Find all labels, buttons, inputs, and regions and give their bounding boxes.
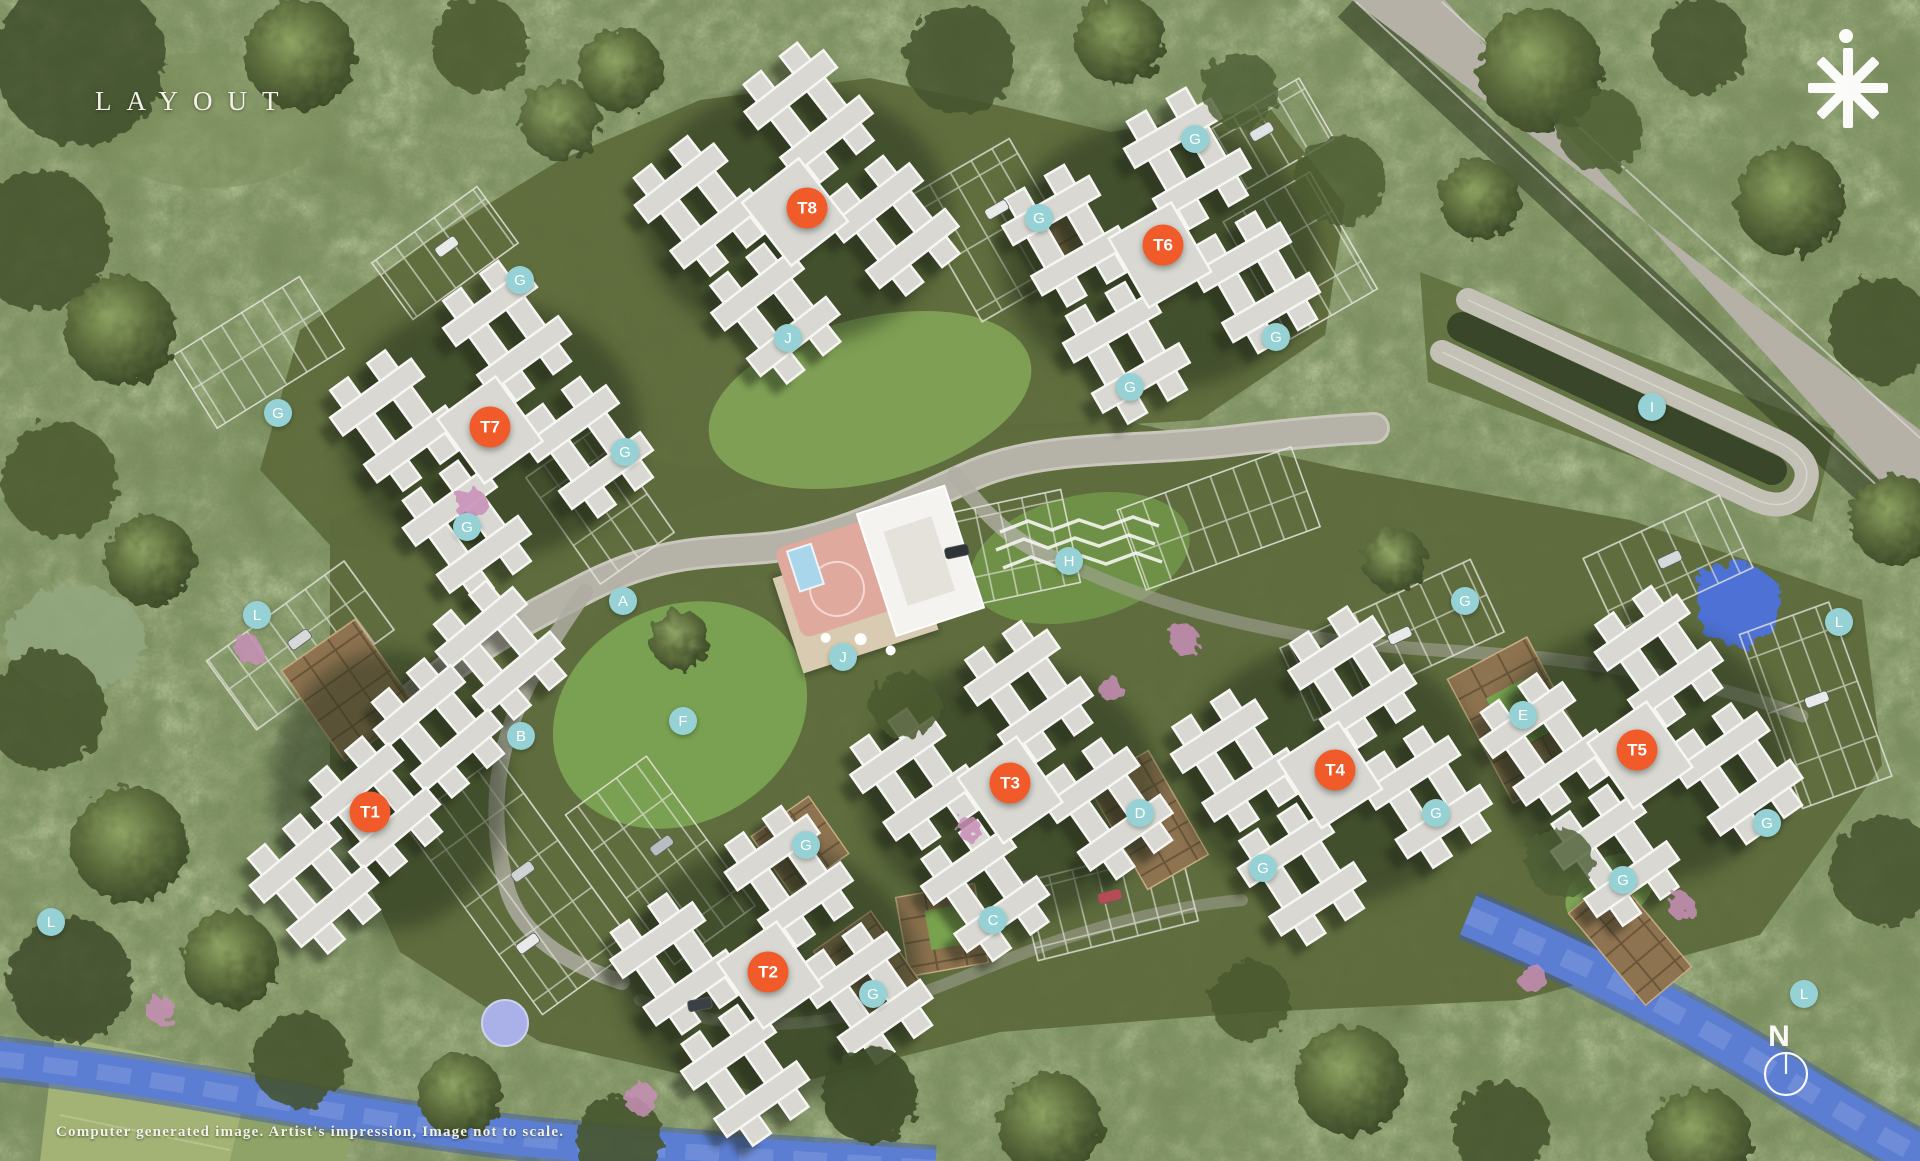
amenity-marker-l-25: L (243, 601, 271, 629)
tower-marker-t4: T4 (1315, 750, 1356, 791)
tower-marker-t3: T3 (990, 763, 1031, 804)
site-layout-map: N T1T2T3T4T5T6T7T8ABCDEFHIJJGGGGGGGGGGGG… (0, 0, 1920, 1161)
amenity-marker-b-1: B (507, 722, 535, 750)
tower-marker-t1: T1 (350, 792, 391, 833)
tower-marker-t7: T7 (470, 407, 511, 448)
tower-marker-t5: T5 (1617, 730, 1658, 771)
page-title: LAYOUT (95, 86, 294, 117)
amenity-marker-l-28: L (1790, 980, 1818, 1008)
tower-marker-t8: T8 (787, 188, 828, 229)
amenity-marker-g-24: G (1753, 809, 1781, 837)
amenity-marker-c-2: C (979, 906, 1007, 934)
amenity-marker-j-8: J (774, 324, 802, 352)
amenity-marker-g-18: G (792, 831, 820, 859)
amenity-marker-g-14: G (1116, 373, 1144, 401)
amenity-marker-g-19: G (859, 980, 887, 1008)
amenity-marker-a-0: A (609, 587, 637, 615)
marker-layer: T1T2T3T4T5T6T7T8ABCDEFHIJJGGGGGGGGGGGGGG… (0, 0, 1920, 1161)
amenity-marker-g-17: G (453, 513, 481, 541)
amenity-marker-e-4: E (1509, 701, 1537, 729)
amenity-marker-g-23: G (1609, 866, 1637, 894)
amenity-marker-d-3: D (1126, 799, 1154, 827)
amenity-marker-g-12: G (1181, 125, 1209, 153)
tower-marker-t2: T2 (748, 952, 789, 993)
amenity-marker-g-15: G (264, 399, 292, 427)
amenity-marker-g-21: G (1422, 799, 1450, 827)
amenity-marker-g-20: G (1249, 854, 1277, 882)
amenity-marker-j-9: J (829, 643, 857, 671)
amenity-marker-g-16: G (611, 438, 639, 466)
amenity-marker-h-6: H (1055, 547, 1083, 575)
amenity-marker-f-5: F (669, 707, 697, 735)
amenity-marker-l-27: L (1825, 608, 1853, 636)
amenity-marker-g-13: G (1262, 323, 1290, 351)
amenity-marker-i-7: I (1638, 393, 1666, 421)
amenity-marker-g-10: G (506, 266, 534, 294)
tower-marker-t6: T6 (1143, 225, 1184, 266)
amenity-marker-g-22: G (1451, 587, 1479, 615)
amenity-marker-l-26: L (37, 908, 65, 936)
disclaimer-text: Computer generated image. Artist's impre… (56, 1124, 564, 1141)
amenity-marker-g-11: G (1025, 204, 1053, 232)
